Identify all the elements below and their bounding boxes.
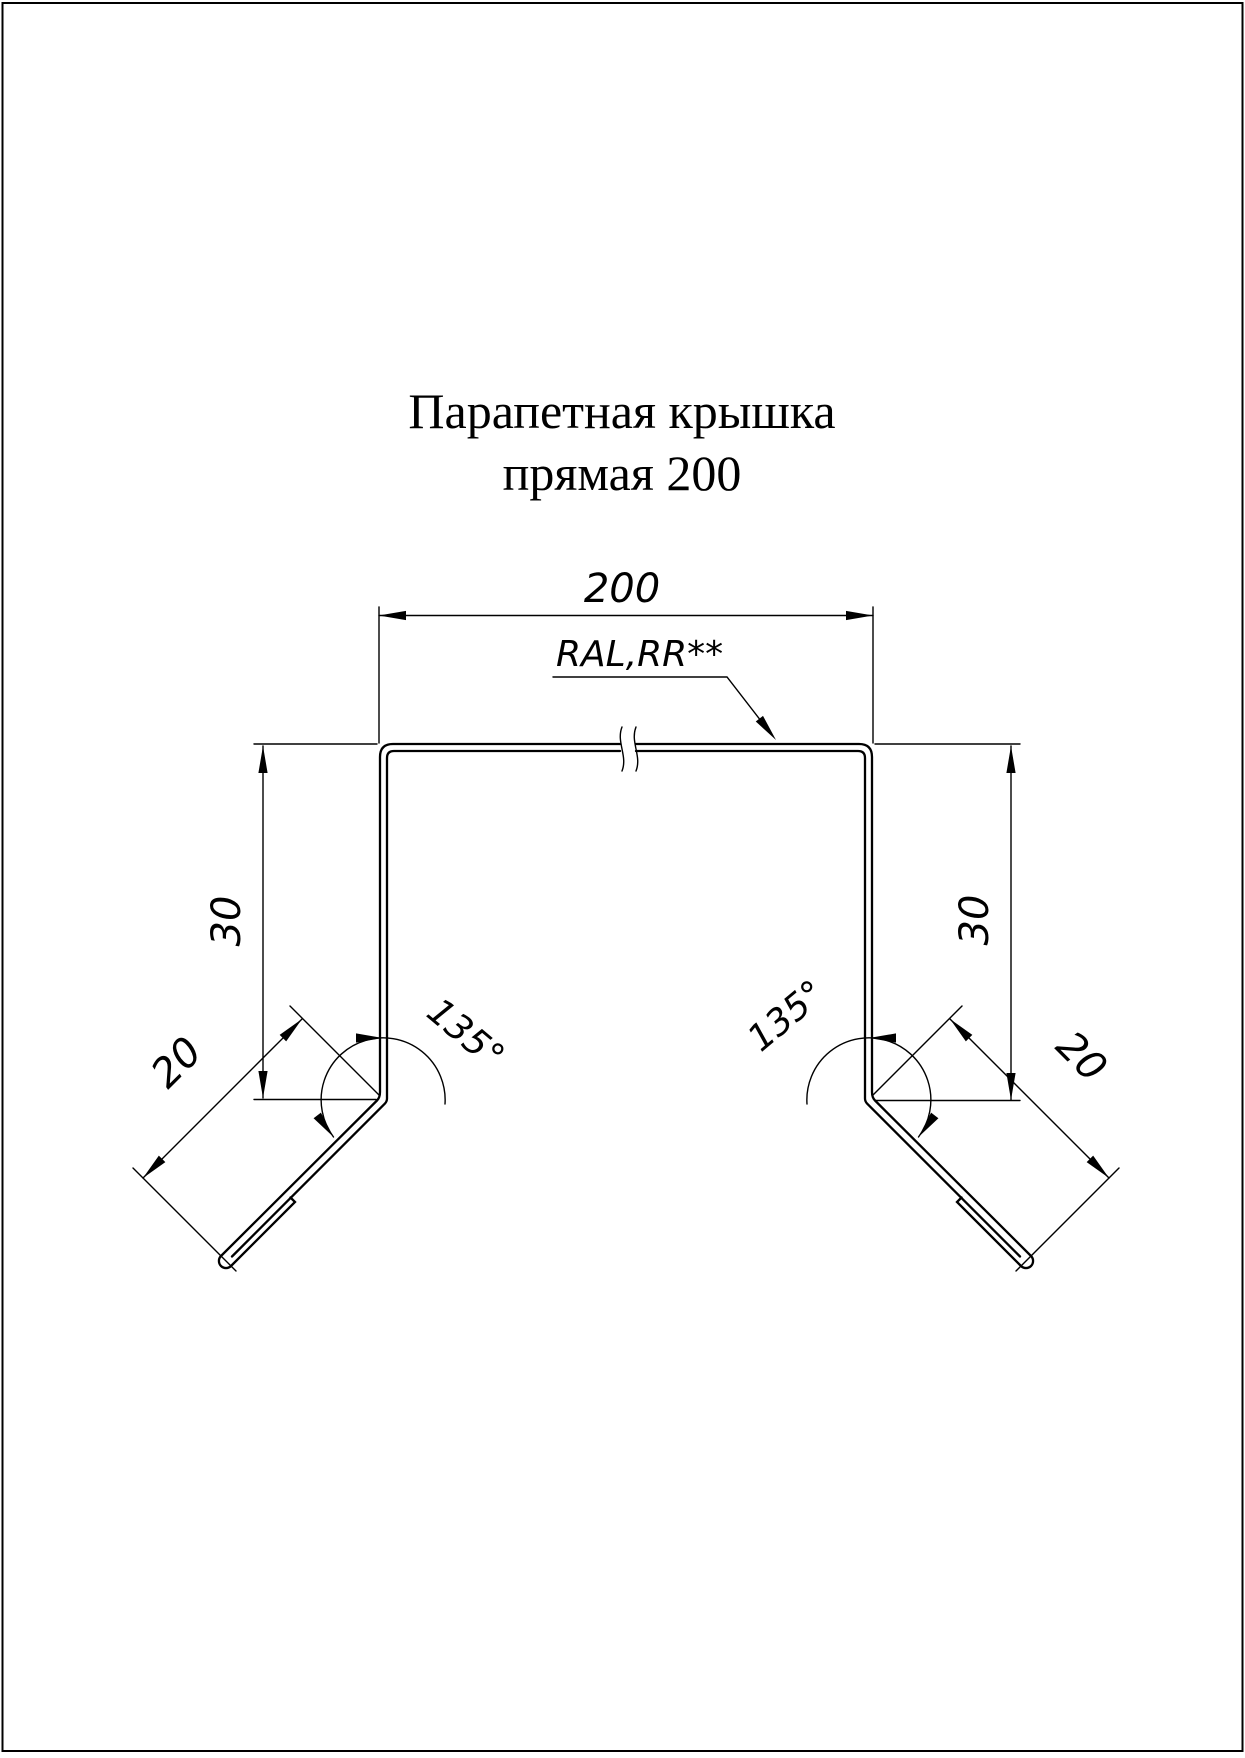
- dimension-height-left-label: 30: [204, 896, 250, 947]
- title-line-2: прямая 200: [503, 445, 742, 501]
- arrow-left-icon: [379, 611, 406, 620]
- dimension-height-right: 30: [875, 744, 1020, 1101]
- angle-right-label: 135°: [740, 973, 833, 1060]
- extension-line: [290, 1006, 379, 1095]
- dimension-hem-left-label: 20: [143, 1029, 212, 1098]
- arrow-right-icon: [846, 611, 873, 620]
- dimension-top-width-label: 200: [584, 566, 660, 612]
- arrow-nw-icon: [947, 1016, 973, 1042]
- angle-left-label: 135°: [419, 991, 512, 1078]
- leader-line: [553, 677, 772, 735]
- technical-drawing: Парапетная крышка прямая 200 200 RAL,RR*…: [0, 0, 1245, 1758]
- arrow-up-icon: [258, 746, 267, 773]
- profile-left-outer: [221, 744, 620, 1256]
- arrow-sw-icon: [140, 1156, 166, 1182]
- coating-label: RAL,RR**: [556, 634, 723, 675]
- angle-arc: [321, 1038, 445, 1137]
- profile-right-outer: [636, 744, 1031, 1256]
- extension-line: [873, 1006, 962, 1095]
- dimension-hem-right-label: 20: [1047, 1023, 1116, 1092]
- arc-arrow-icon: [915, 1113, 939, 1140]
- drawing-title: Парапетная крышка прямая 200: [408, 383, 835, 501]
- profile-left-inner: [232, 751, 620, 1257]
- arrow-se-icon: [1087, 1156, 1113, 1182]
- arrow-down-icon: [258, 1071, 267, 1098]
- arrow-up-icon: [1006, 746, 1015, 773]
- extension-line: [133, 1168, 236, 1271]
- arrow-ne-icon: [280, 1016, 306, 1042]
- angle-dimension-left: 135°: [314, 991, 512, 1140]
- break-symbol: [620, 727, 637, 771]
- leader-arrow-icon: [756, 716, 780, 743]
- page-border: [3, 3, 1243, 1751]
- profile-outline: [219, 727, 1033, 1268]
- material-leader: RAL,RR**: [553, 634, 780, 743]
- angle-arc: [807, 1038, 931, 1137]
- drawing-page: Парапетная крышка прямая 200 200 RAL,RR*…: [0, 0, 1245, 1758]
- angle-dimension-right: 135°: [740, 973, 938, 1140]
- arc-arrow-icon: [314, 1113, 338, 1140]
- dimension-height-right-label: 30: [952, 895, 998, 946]
- title-line-1: Парапетная крышка: [408, 383, 835, 439]
- extension-line: [1016, 1168, 1119, 1271]
